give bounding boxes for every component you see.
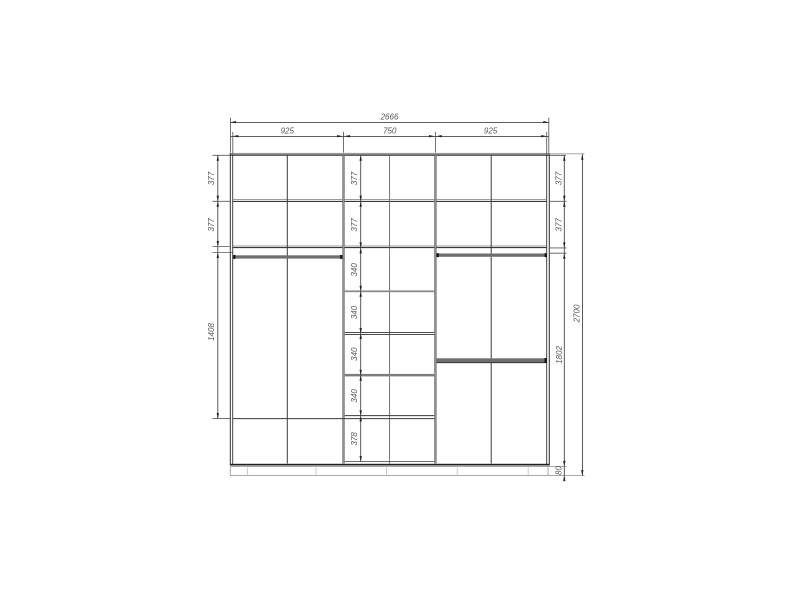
svg-text:340: 340 bbox=[350, 263, 359, 277]
svg-text:1802: 1802 bbox=[555, 346, 564, 364]
svg-text:377: 377 bbox=[350, 218, 359, 232]
svg-text:925: 925 bbox=[281, 127, 295, 136]
svg-text:377: 377 bbox=[554, 171, 563, 185]
svg-text:2700: 2700 bbox=[572, 304, 581, 323]
svg-text:378: 378 bbox=[350, 432, 359, 446]
svg-text:2666: 2666 bbox=[380, 113, 399, 122]
svg-text:377: 377 bbox=[207, 218, 216, 232]
svg-text:925: 925 bbox=[484, 127, 498, 136]
svg-text:340: 340 bbox=[350, 389, 359, 403]
svg-text:750: 750 bbox=[383, 127, 397, 136]
svg-text:340: 340 bbox=[350, 305, 359, 319]
svg-text:377: 377 bbox=[207, 171, 216, 185]
svg-text:377: 377 bbox=[554, 218, 563, 232]
svg-text:80: 80 bbox=[554, 466, 563, 475]
svg-text:1408: 1408 bbox=[207, 323, 216, 341]
svg-text:340: 340 bbox=[350, 347, 359, 361]
svg-text:377: 377 bbox=[350, 171, 359, 185]
